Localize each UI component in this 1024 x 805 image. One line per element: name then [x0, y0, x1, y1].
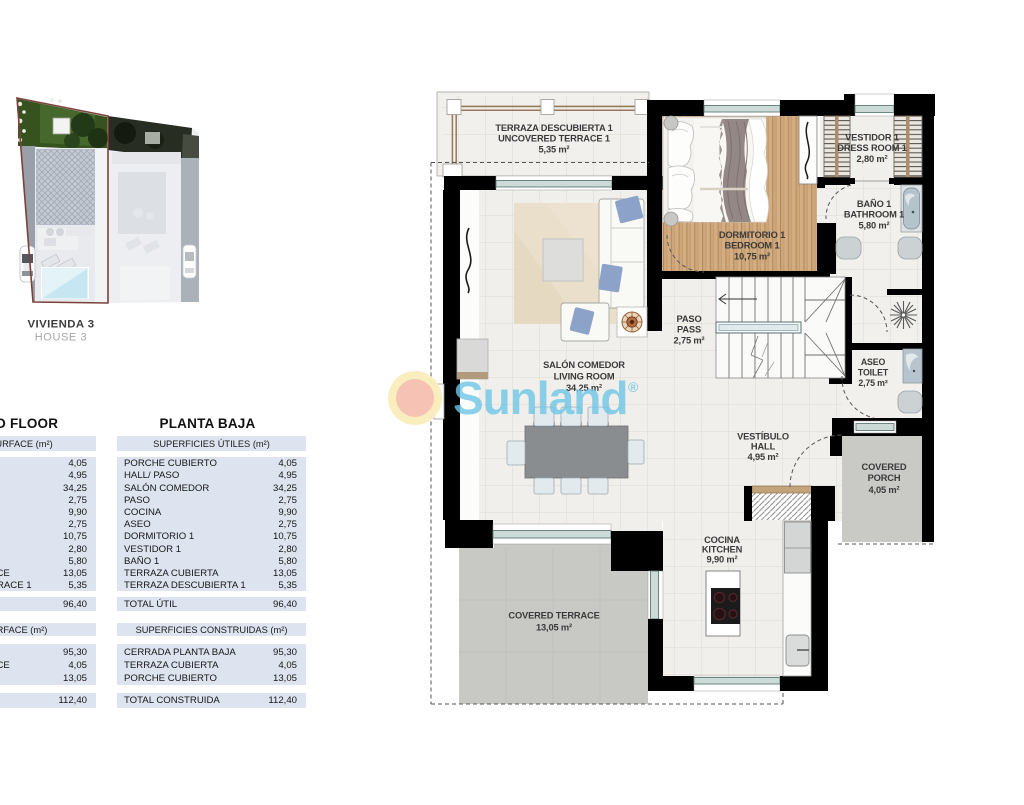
svg-text:BAÑO 1: BAÑO 1: [857, 199, 891, 209]
svg-text:13,05 m²: 13,05 m²: [536, 623, 572, 633]
svg-text:2,80 m²: 2,80 m²: [857, 154, 888, 164]
svg-text:®: ®: [628, 379, 639, 395]
svg-text:9,90 m²: 9,90 m²: [707, 555, 738, 565]
svg-text:DRESS ROOM 1: DRESS ROOM 1: [837, 143, 907, 153]
svg-text:SALÓN COMEDOR: SALÓN COMEDOR: [543, 359, 625, 370]
svg-text:BATHROOM 1: BATHROOM 1: [844, 210, 904, 220]
svg-text:COCINA: COCINA: [704, 535, 740, 545]
svg-text:4,95 m²: 4,95 m²: [748, 452, 779, 462]
svg-text:5,35 m²: 5,35 m²: [539, 145, 570, 155]
svg-text:COVERED TERRACE: COVERED TERRACE: [508, 611, 599, 621]
svg-text:Sunland: Sunland: [453, 372, 627, 424]
svg-text:ASEO: ASEO: [861, 357, 886, 367]
svg-text:PASS: PASS: [677, 325, 701, 335]
svg-text:2,75 m²: 2,75 m²: [858, 378, 887, 388]
svg-text:DORMITORIO 1: DORMITORIO 1: [719, 230, 785, 240]
svg-text:VESTÍBULO: VESTÍBULO: [737, 432, 789, 442]
svg-text:PORCH: PORCH: [868, 473, 901, 483]
svg-text:4,05 m²: 4,05 m²: [869, 485, 900, 495]
svg-text:5,80 m²: 5,80 m²: [859, 221, 890, 231]
svg-text:2,75 m²: 2,75 m²: [674, 336, 705, 346]
svg-text:KITCHEN: KITCHEN: [702, 545, 743, 555]
svg-text:TERRAZA DESCUBIERTA 1: TERRAZA DESCUBIERTA 1: [495, 123, 612, 133]
svg-text:UNCOVERED TERRACE 1: UNCOVERED TERRACE 1: [498, 134, 610, 144]
svg-text:HALL: HALL: [751, 442, 776, 452]
svg-text:VESTIDOR 1: VESTIDOR 1: [845, 133, 899, 143]
svg-text:BEDROOM 1: BEDROOM 1: [725, 241, 780, 251]
svg-text:10,75 m²: 10,75 m²: [734, 252, 770, 262]
svg-text:PASO: PASO: [676, 314, 701, 324]
svg-text:TOILET: TOILET: [858, 368, 889, 378]
svg-text:COVERED: COVERED: [862, 462, 907, 472]
